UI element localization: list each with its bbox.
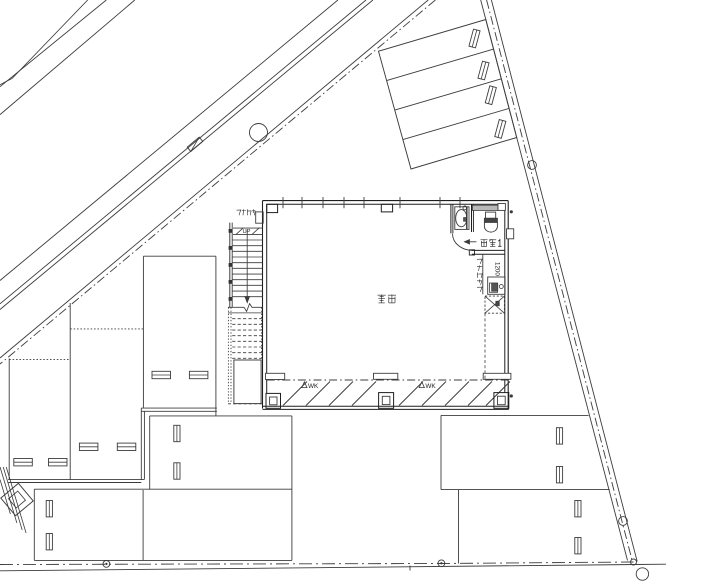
- svg-text:UP: UP: [243, 229, 251, 235]
- svg-text:WK: WK: [425, 383, 436, 390]
- svg-text:WK: WK: [308, 383, 319, 390]
- svg-text:1200: 1200: [494, 262, 501, 276]
